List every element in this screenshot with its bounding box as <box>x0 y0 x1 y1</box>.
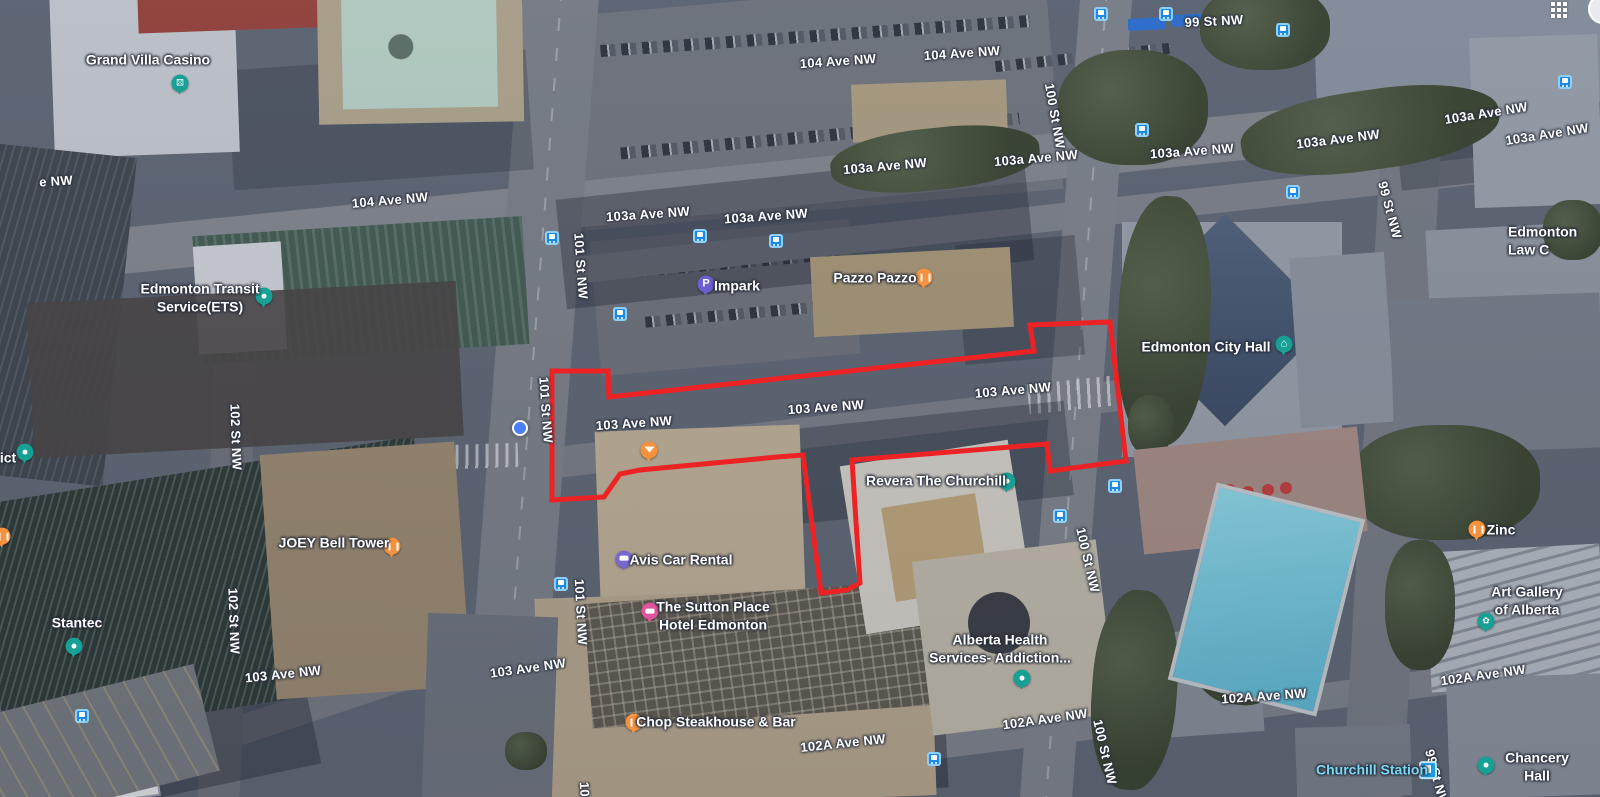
poi-pin-shape <box>0 528 11 545</box>
street-label: 102 St NW <box>225 588 242 655</box>
poi-glyph <box>1014 670 1031 687</box>
bus-stop-icon[interactable] <box>1094 7 1108 21</box>
bus-stop-icon[interactable] <box>545 231 559 245</box>
poi-pin-shape <box>916 269 933 286</box>
street-label: e NW <box>39 172 74 189</box>
trees <box>1385 540 1455 670</box>
bus-stop-icon[interactable] <box>613 307 627 321</box>
alberta-health-services[interactable]: Alberta Health Services- Addiction... <box>929 632 1071 667</box>
stantec[interactable]: Stantec <box>52 614 103 632</box>
sutton-place-hotel[interactable]: The Sutton Place Hotel Edmonton <box>656 599 770 634</box>
bus-stop-icon[interactable] <box>554 577 568 591</box>
poi-glyph <box>641 442 658 459</box>
churchill-station[interactable]: Churchill Station <box>1316 761 1428 779</box>
poi-glyph <box>0 528 11 545</box>
joey-bell-tower[interactable]: JOEY Bell Tower <box>279 534 390 552</box>
revera-the-churchill[interactable]: Revera The Churchill <box>866 472 1006 490</box>
impark[interactable]: Impark <box>714 277 760 295</box>
pazzo-pazzo[interactable]: Pazzo Pazzo <box>833 269 916 287</box>
building-casino-mint-roof <box>341 0 498 109</box>
district-partial[interactable] <box>17 444 34 461</box>
poi-glyph <box>172 75 189 92</box>
bus-stop-icon[interactable] <box>1276 23 1290 37</box>
edmonton-transit-service[interactable]: Edmonton Transit Service(ETS) <box>141 281 260 316</box>
bus-stop-icon[interactable] <box>1558 75 1572 89</box>
bus-stop-icon[interactable] <box>1286 185 1300 199</box>
impark[interactable] <box>698 276 715 293</box>
street-label: 102 St NW <box>227 404 244 471</box>
chop-steakhouse[interactable]: Chop Steakhouse & Bar <box>636 713 795 731</box>
poi-pin-shape <box>1014 670 1031 687</box>
location-dot <box>512 420 528 436</box>
bus-stop-icon[interactable] <box>927 752 941 766</box>
pazzo-pazzo[interactable] <box>916 269 933 286</box>
bus-stop-icon[interactable] <box>769 234 783 248</box>
chancery-hall[interactable]: Chancery Hall <box>1505 750 1569 785</box>
poi-pin-shape <box>17 444 34 461</box>
poi-partial-left-edge[interactable] <box>0 528 11 545</box>
poi-glyph <box>1469 521 1486 538</box>
street-label: 99 St NW <box>1184 12 1243 30</box>
bus-stop-icon[interactable] <box>1053 509 1067 523</box>
poi-glyph <box>698 276 715 293</box>
district-partial[interactable]: ict <box>0 449 16 467</box>
building-red-roof <box>137 0 338 33</box>
building-city-hall-wing <box>1289 252 1396 428</box>
bus-stop-icon[interactable] <box>1108 479 1122 493</box>
poi-pin-shape <box>641 442 658 459</box>
poi-glyph <box>916 269 933 286</box>
bar-unnamed[interactable] <box>641 442 658 459</box>
bus-stop-icon[interactable] <box>693 229 707 243</box>
grand-villa-casino[interactable] <box>172 75 189 92</box>
poi-glyph <box>1276 336 1293 353</box>
building-parkade <box>422 613 558 797</box>
poi-glyph <box>1478 757 1495 774</box>
crosswalk <box>446 443 519 469</box>
poi-pin-shape <box>698 276 715 293</box>
grand-villa-casino[interactable]: Grand Villa Casino <box>86 51 210 69</box>
chancery-hall[interactable] <box>1478 757 1495 774</box>
edmonton-city-hall[interactable]: Edmonton City Hall <box>1141 338 1270 356</box>
bus-stop-icon[interactable] <box>1135 123 1149 137</box>
building-pazzo <box>810 247 1014 337</box>
street-label: 101 St NW <box>572 579 590 646</box>
poi-pin-shape <box>172 75 189 92</box>
poi-pin-shape <box>1276 336 1293 353</box>
map-canvas[interactable]: e NW 104 Ave NW 104 Ave NW 104 Ave NW 10… <box>0 0 1600 797</box>
bus-stop-icon[interactable] <box>75 709 89 723</box>
zinc[interactable]: Zinc <box>1487 521 1516 539</box>
google-apps-grid-icon[interactable] <box>1551 2 1567 18</box>
poi-pin-shape <box>1478 757 1495 774</box>
edmonton-law-courts[interactable]: Edmonton Law C <box>1508 224 1600 259</box>
stantec[interactable] <box>66 638 83 655</box>
poi-glyph <box>66 638 83 655</box>
art-gallery-of-alberta[interactable]: Art Gallery of Alberta <box>1491 584 1564 619</box>
poi-glyph <box>17 444 34 461</box>
trees <box>1200 0 1330 70</box>
avis-car-rental[interactable]: Avis Car Rental <box>630 551 733 569</box>
alberta-health-services[interactable] <box>1014 670 1031 687</box>
edmonton-city-hall[interactable] <box>1276 336 1293 353</box>
zinc[interactable] <box>1469 521 1486 538</box>
poi-pin-shape <box>66 638 83 655</box>
bus-stop-icon[interactable] <box>1159 7 1173 21</box>
umbrella <box>1280 482 1292 494</box>
poi-pin-shape <box>1469 521 1486 538</box>
trees <box>505 732 547 770</box>
